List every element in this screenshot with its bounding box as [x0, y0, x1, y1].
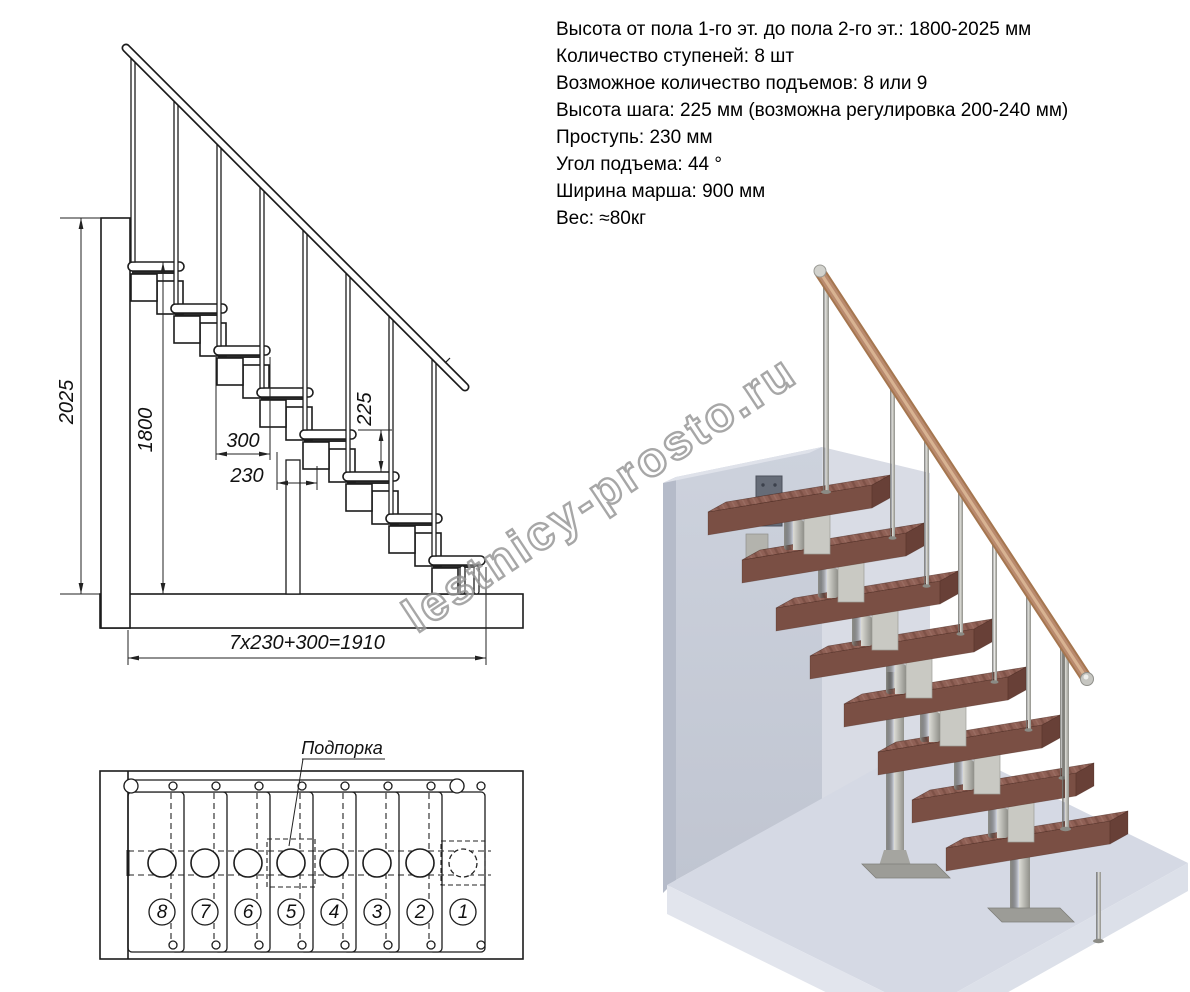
staircase-spec-sheet: 2025 1800 300 230 225	[0, 0, 1190, 992]
step-number-6: 6	[243, 902, 254, 923]
dim-total-height: 2025	[56, 379, 78, 425]
spec-line-width: Ширина марша: 900 мм	[556, 178, 1068, 205]
plan-view-drawing: Подпорка 8 7 6 5 4 3 2 1	[100, 738, 523, 959]
step-number-4: 4	[329, 902, 340, 923]
step-number-5: 5	[286, 902, 297, 923]
specs-list: Высота от пола 1-го эт. до пола 2-го эт.…	[556, 16, 1068, 232]
spec-line-height-range: Высота от пола 1-го эт. до пола 2-го эт.…	[556, 16, 1068, 43]
floor-slab	[100, 594, 523, 628]
dim-rise: 225	[354, 391, 376, 426]
spec-line-angle: Угол подъема: 44 °	[556, 151, 1068, 178]
step-number-1: 1	[458, 902, 469, 923]
spec-line-rise-count: Возможное количество подъемов: 8 или 9	[556, 70, 1068, 97]
step-number-8: 8	[157, 902, 168, 923]
dim-total-run: 7x230+300=1910	[229, 632, 385, 654]
side-view-drawing: 2025 1800 300 230 225	[56, 48, 523, 665]
dim-tread-depth: 300	[226, 430, 259, 452]
dim-clear-height: 1800	[135, 408, 157, 453]
support-label: Подпорка	[301, 738, 382, 758]
render-3d	[663, 265, 1188, 992]
step-number-7: 7	[200, 902, 212, 923]
support-post	[286, 460, 300, 594]
spec-line-step-count: Количество ступеней: 8 шт	[556, 43, 1068, 70]
spec-line-weight: Вес: ≈80кг	[556, 205, 1068, 232]
step-number-2: 2	[414, 902, 426, 923]
spec-line-tread: Проступь: 230 мм	[556, 124, 1068, 151]
dim-going: 230	[229, 465, 263, 487]
step-number-3: 3	[372, 902, 383, 923]
spec-line-step-height: Высота шага: 225 мм (возможна регулировк…	[556, 97, 1068, 124]
upper-floor-wall	[101, 218, 130, 628]
plan-handrail	[124, 779, 485, 793]
